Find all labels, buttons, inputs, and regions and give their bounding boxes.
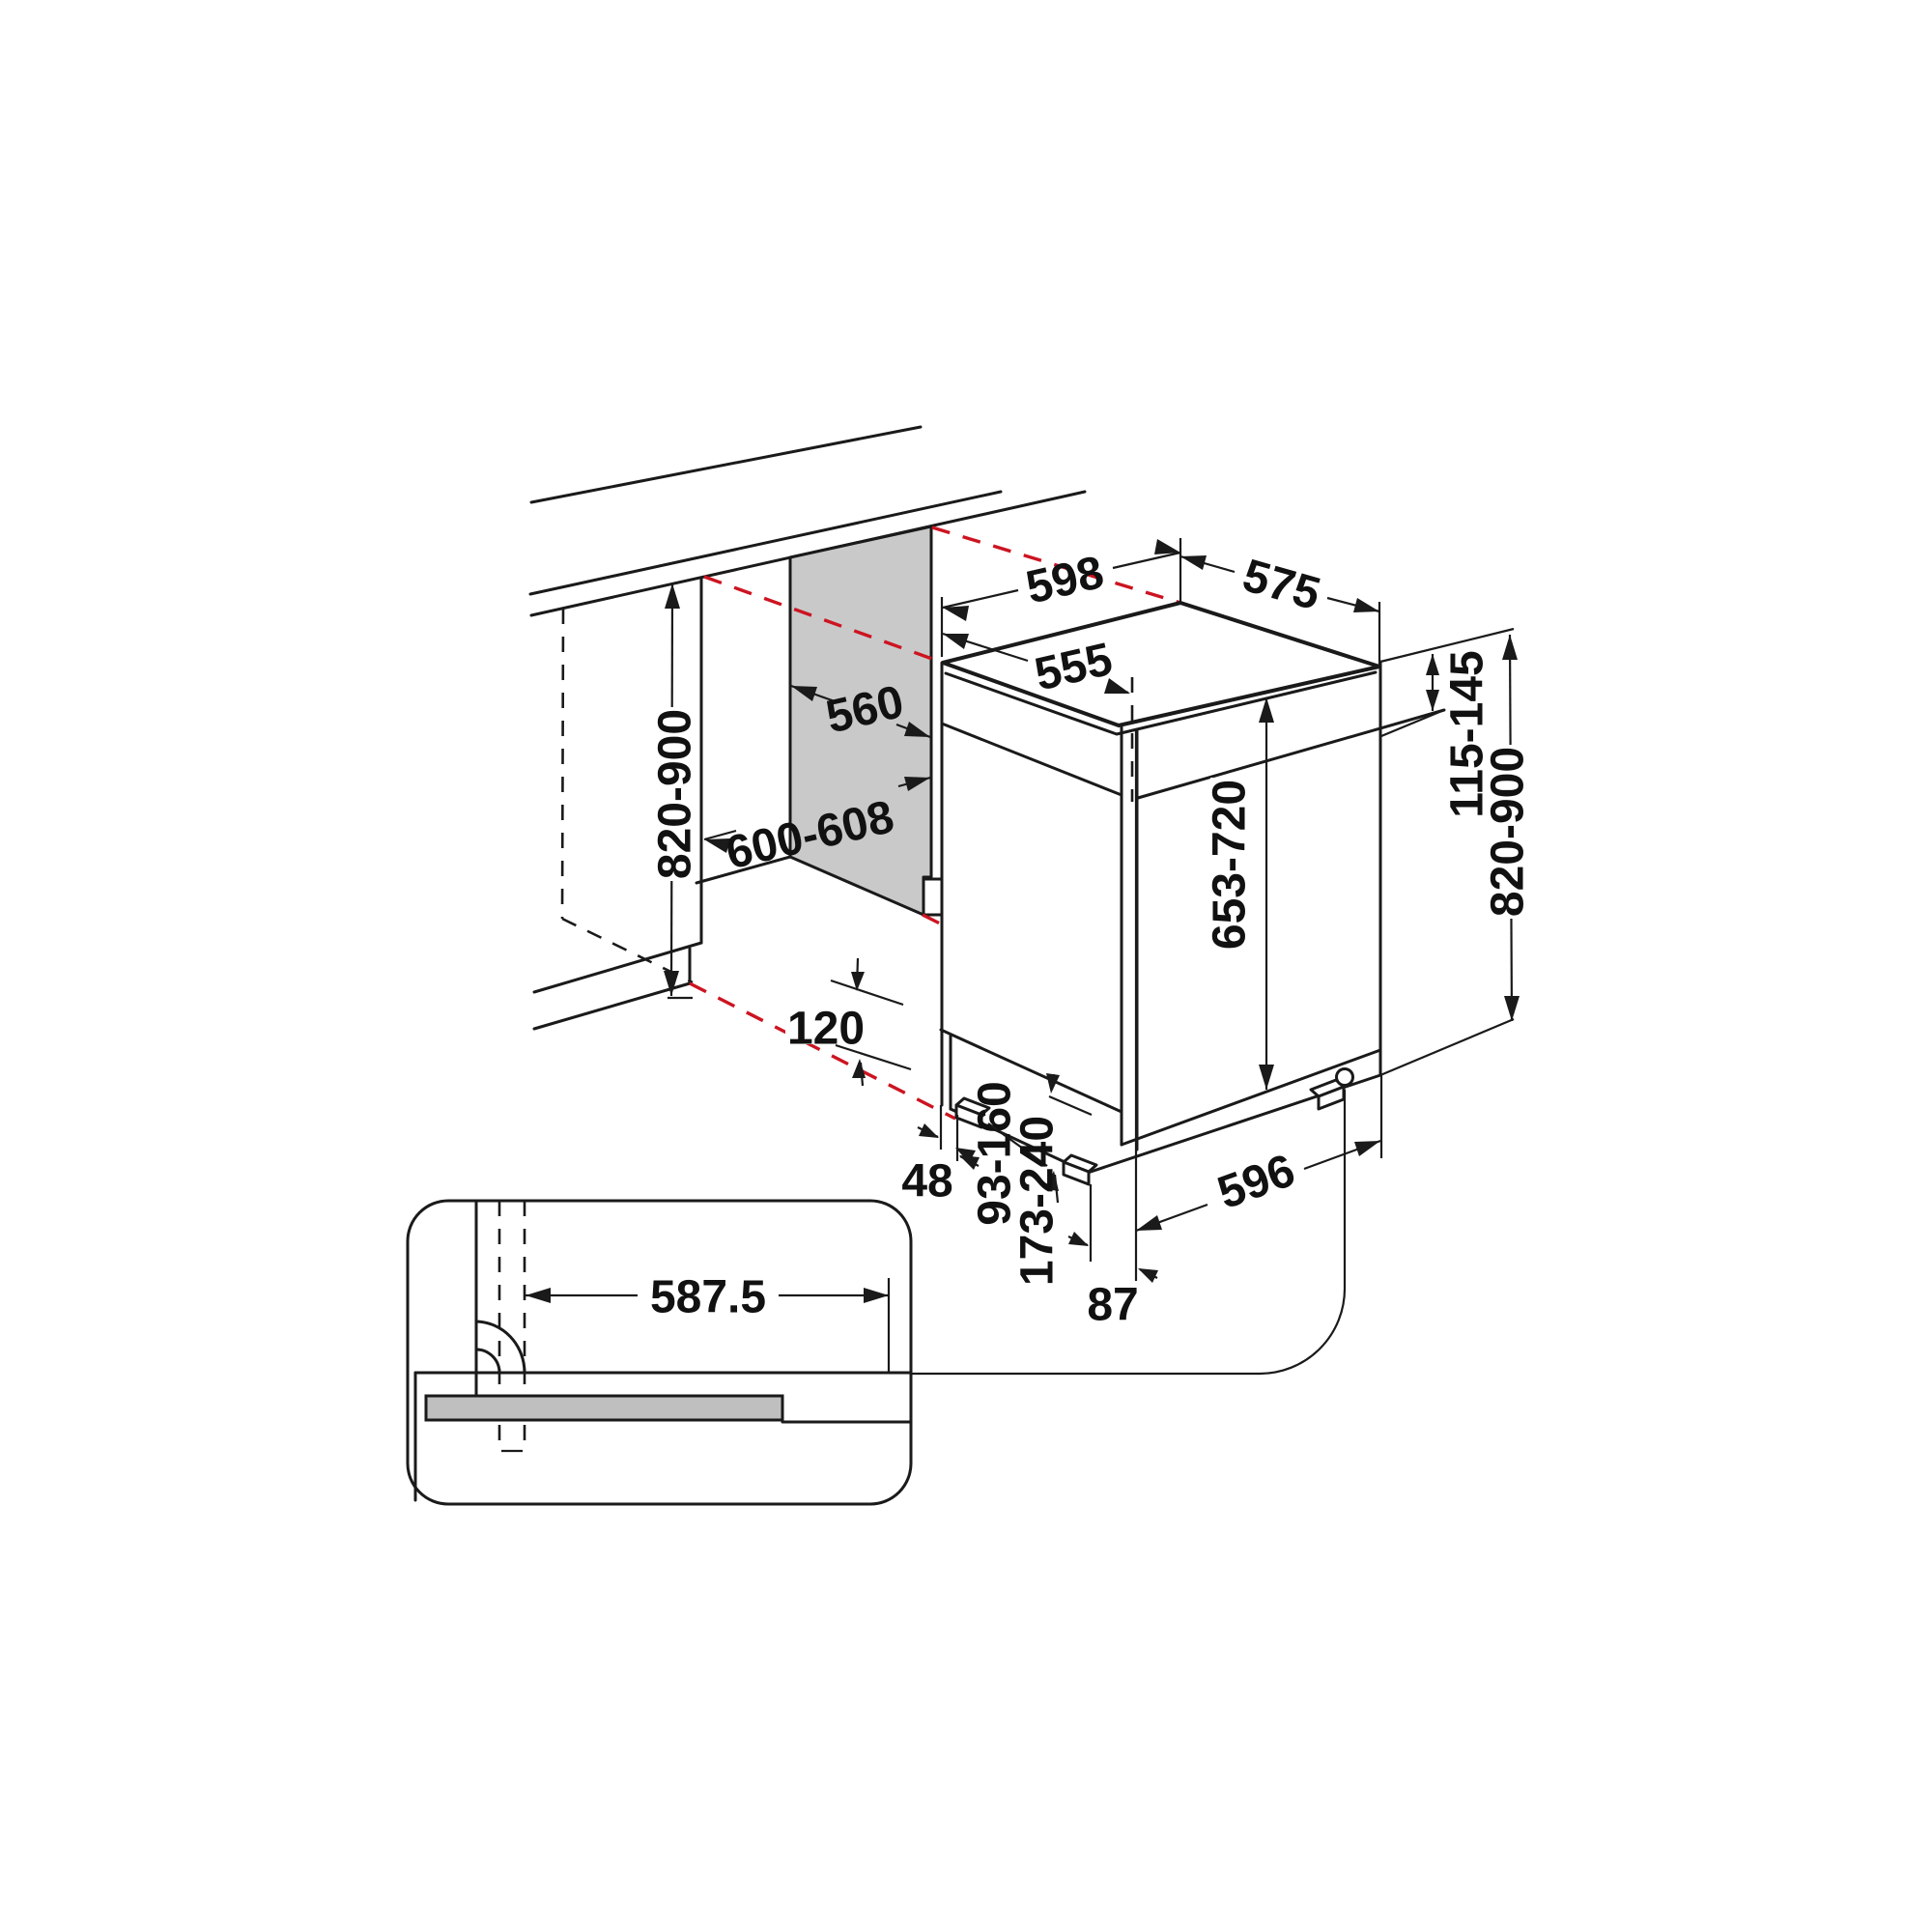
svg-text:173-240: 173-240 (1011, 1116, 1063, 1286)
svg-text:820-900: 820-900 (1482, 747, 1533, 917)
svg-text:87: 87 (1087, 1279, 1138, 1330)
svg-text:820-900: 820-900 (649, 709, 700, 879)
svg-text:48: 48 (901, 1155, 952, 1207)
svg-text:120: 120 (787, 1003, 865, 1054)
svg-text:587.5: 587.5 (650, 1271, 766, 1322)
svg-text:653-720: 653-720 (1204, 780, 1255, 950)
